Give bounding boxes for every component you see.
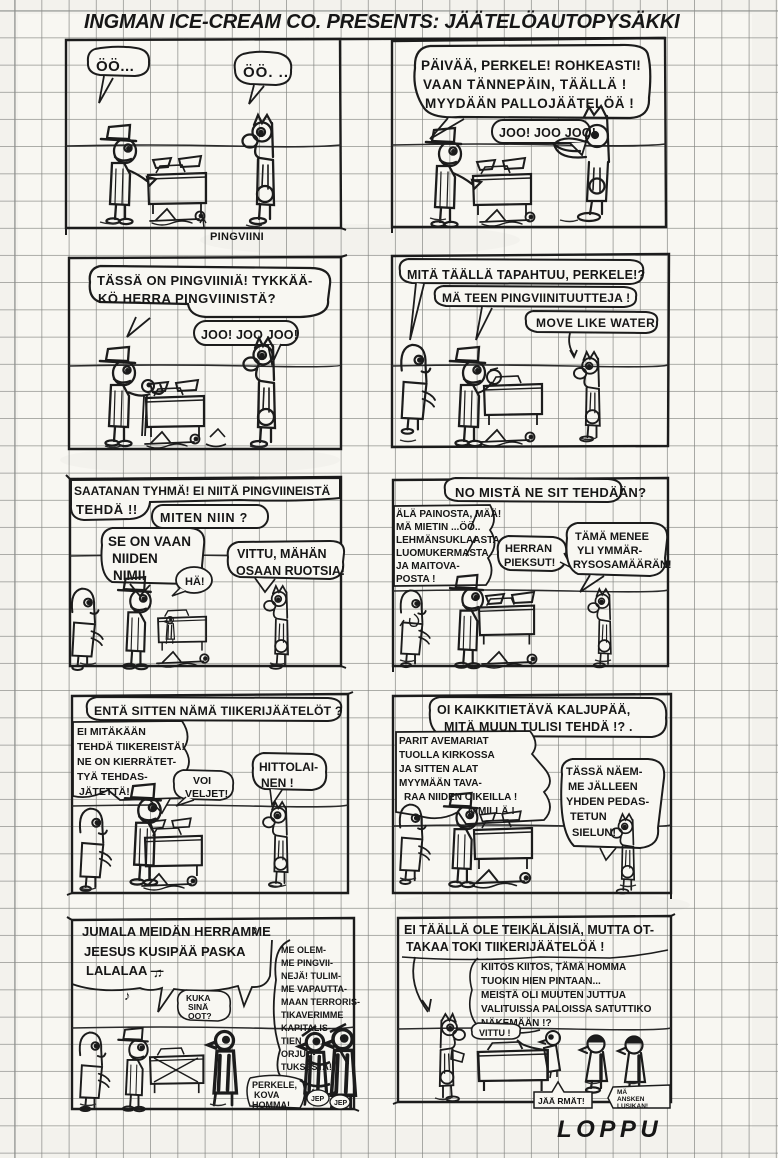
svg-text:ÖÖ...: ÖÖ...: [96, 58, 134, 75]
svg-text:NEJÄ! TULIM-: NEJÄ! TULIM-: [281, 971, 341, 981]
svg-text:JA MAITOVA-: JA MAITOVA-: [396, 561, 460, 572]
svg-text:MYYMÄÄN TAVA-: MYYMÄÄN TAVA-: [399, 776, 482, 789]
svg-text:HITTOLAI-: HITTOLAI-: [259, 760, 318, 774]
svg-text:MOVE LIKE WATER: MOVE LIKE WATER: [536, 316, 655, 330]
svg-text:NIMI!: NIMI!: [113, 568, 146, 583]
svg-text:PARIT AVEMARIAT: PARIT AVEMARIAT: [399, 736, 489, 747]
svg-text:ME PINGVII-: ME PINGVII-: [281, 958, 333, 968]
svg-text:EI MITÄKÄÄN: EI MITÄKÄÄN: [77, 725, 146, 738]
svg-text:VELJET!: VELJET!: [185, 788, 228, 800]
svg-text:PIEKSUT!: PIEKSUT!: [504, 557, 555, 569]
svg-text:OSAAN RUOTSIA!: OSAAN RUOTSIA!: [236, 564, 345, 578]
svg-text:VOI: VOI: [193, 775, 211, 787]
svg-text:NIIDEN: NIIDEN: [112, 551, 158, 566]
svg-text:KOVA: KOVA: [254, 1090, 280, 1100]
svg-text:SAATANAN TYHMÄ! EI NIITÄ PINGV: SAATANAN TYHMÄ! EI NIITÄ PINGVIINEISTÄ: [74, 483, 331, 498]
svg-text:JEESUS KUSIPÄÄ PASKA: JEESUS KUSIPÄÄ PASKA: [84, 944, 246, 959]
svg-text:HERRAN: HERRAN: [505, 543, 552, 555]
svg-text:TÄSSÄ NÄEM-: TÄSSÄ NÄEM-: [566, 765, 643, 778]
svg-text:ME OLEM-: ME OLEM-: [281, 945, 326, 955]
svg-text:LUSIKAN!: LUSIKAN!: [617, 1103, 648, 1110]
svg-text:TÄSSÄ ON PINGVIINIÄ! TYKKÄÄ-: TÄSSÄ ON PINGVIINIÄ! TYKKÄÄ-: [97, 273, 313, 288]
svg-text:NEN !: NEN !: [261, 776, 294, 790]
svg-text:MEISTÄ OLI MUUTEN JUTTUA: MEISTÄ OLI MUUTEN JUTTUA: [481, 988, 626, 1001]
svg-text:POSTA !: POSTA !: [396, 574, 435, 585]
svg-text:♪: ♪: [124, 988, 131, 1003]
svg-text:MÄ: MÄ: [617, 1088, 627, 1096]
svg-text:YLI YMMÄR-: YLI YMMÄR-: [577, 544, 643, 557]
svg-text:TAKAA TOKI TIIKERIJÄÄTELÖÄ !: TAKAA TOKI TIIKERIJÄÄTELÖÄ !: [406, 939, 604, 954]
svg-text:ME JÄLLEEN: ME JÄLLEEN: [568, 780, 638, 793]
svg-text:TÄMÄ MENEE: TÄMÄ MENEE: [575, 530, 649, 543]
svg-text:TETUN: TETUN: [570, 811, 607, 823]
svg-text:SIELUN!: SIELUN!: [572, 827, 616, 839]
svg-text:LEHMÄNSUKLAASTA: LEHMÄNSUKLAASTA: [396, 533, 500, 546]
svg-text:NO MISTÄ NE SIT TEHDÄÄN?: NO MISTÄ NE SIT TEHDÄÄN?: [455, 485, 646, 500]
svg-text:VITTU, MÄHÄN: VITTU, MÄHÄN: [237, 546, 327, 561]
svg-text:JEP: JEP: [334, 1100, 348, 1107]
svg-text:ÖÖ. ..: ÖÖ. ..: [243, 64, 289, 81]
svg-text:JOO! JOO JOO!: JOO! JOO JOO!: [201, 328, 298, 342]
svg-text:JÄÄ RMÄT!: JÄÄ RMÄT!: [538, 1096, 585, 1106]
svg-text:PINGVIINI: PINGVIINI: [210, 231, 264, 243]
svg-text:PÄIVÄÄ, PERKELE! ROHKEASTI!: PÄIVÄÄ, PERKELE! ROHKEASTI!: [421, 58, 641, 73]
svg-text:TEHDÄ !!: TEHDÄ !!: [76, 502, 138, 517]
svg-text:TIKAVERIMME: TIKAVERIMME: [281, 1010, 343, 1020]
svg-text:KIITOS KIITOS, TÄMÄ HOMMA: KIITOS KIITOS, TÄMÄ HOMMA: [481, 960, 626, 973]
svg-text:VITTU !: VITTU !: [479, 1028, 511, 1038]
svg-text:LUOMUKERMASTA: LUOMUKERMASTA: [396, 548, 489, 559]
svg-text:ANSKEN: ANSKEN: [617, 1096, 645, 1103]
svg-text:TYÄ TEHDAS-: TYÄ TEHDAS-: [77, 770, 148, 783]
svg-text:EI TÄÄLLÄ OLE TEIKÄLÄISIÄ, MUT: EI TÄÄLLÄ OLE TEIKÄLÄISIÄ, MUTTA OT-: [404, 922, 654, 937]
svg-text:TUOLLA KIRKOSSA: TUOLLA KIRKOSSA: [399, 750, 495, 761]
svg-text:INGMAN ICE-CREAM CO. PRESENTS:: INGMAN ICE-CREAM CO. PRESENTS: JÄÄTELÖAU…: [84, 10, 680, 33]
svg-text:JOO! JOO JOO!: JOO! JOO JOO!: [499, 126, 596, 140]
svg-text:MÄ TEEN PINGVIINITUUTTEJA !: MÄ TEEN PINGVIINITUUTTEJA !: [442, 290, 630, 305]
svg-text:VALITUISSA PALOISSA SATUTTIKO: VALITUISSA PALOISSA SATUTTIKO: [481, 1004, 652, 1015]
svg-text:KÖ HERRA PINGVIINISTÄ?: KÖ HERRA PINGVIINISTÄ?: [98, 291, 276, 306]
svg-text:MÄ MIETIN ...ÖÖ..: MÄ MIETIN ...ÖÖ..: [396, 520, 481, 533]
svg-text:YHDEN PEDAS-: YHDEN PEDAS-: [566, 796, 649, 808]
svg-text:ME VAPAUTTA-: ME VAPAUTTA-: [281, 984, 347, 994]
svg-text:♪: ♪: [252, 922, 259, 937]
svg-text:VAAN TÄNNEPÄIN, TÄÄLLÄ !: VAAN TÄNNEPÄIN, TÄÄLLÄ !: [423, 77, 627, 92]
svg-text:JA SITTEN ALAT: JA SITTEN ALAT: [399, 764, 478, 775]
svg-text:RYSOSAMÄÄRÄN!: RYSOSAMÄÄRÄN!: [573, 558, 672, 571]
svg-text:TIEN: TIEN: [281, 1036, 302, 1046]
svg-text:MITEN NIIN ?: MITEN NIIN ?: [160, 511, 248, 525]
svg-text:ENTÄ SITTEN NÄMÄ TIIKERIJÄÄTEL: ENTÄ SITTEN NÄMÄ TIIKERIJÄÄTELÖT ?: [94, 703, 343, 718]
svg-text:PERKELE,: PERKELE,: [252, 1080, 297, 1090]
svg-text:OOT?: OOT?: [188, 1011, 212, 1021]
svg-text:MAAN TERRORIS-: MAAN TERRORIS-: [281, 997, 360, 1007]
svg-text:SE ON VAAN: SE ON VAAN: [108, 534, 191, 549]
svg-text:TUOKIN HIEN PINTAAN...: TUOKIN HIEN PINTAAN...: [481, 976, 601, 987]
svg-text:LALALAA —: LALALAA —: [86, 963, 164, 978]
svg-text:ÄLÄ PAINOSTA, MÄÄ!: ÄLÄ PAINOSTA, MÄÄ!: [396, 507, 501, 520]
svg-text:TEHDÄ TIIKEREISTÄ!: TEHDÄ TIIKEREISTÄ!: [77, 740, 185, 753]
svg-text:♫: ♫: [153, 965, 163, 980]
svg-text:HÄ!: HÄ!: [185, 575, 205, 588]
svg-text:LOPPU: LOPPU: [557, 1116, 662, 1143]
svg-text:OI KAIKKITIETÄVÄ KALJUPÄÄ,: OI KAIKKITIETÄVÄ KALJUPÄÄ,: [437, 702, 630, 717]
svg-text:NE ON KIERRÄTET-: NE ON KIERRÄTET-: [77, 755, 177, 768]
svg-text:MITÄ TÄÄLLÄ TAPAHTUU, PERKELE!: MITÄ TÄÄLLÄ TAPAHTUU, PERKELE!?: [407, 267, 645, 282]
svg-text:JÄTETTÄ!: JÄTETTÄ!: [79, 785, 130, 798]
svg-text:KAPITALIS-: KAPITALIS-: [281, 1023, 331, 1033]
svg-text:JUMALA MEIDÄN HERRAMME: JUMALA MEIDÄN HERRAMME: [82, 924, 271, 939]
svg-text:JEP: JEP: [311, 1096, 325, 1103]
svg-text:HOMMA!: HOMMA!: [252, 1100, 290, 1110]
